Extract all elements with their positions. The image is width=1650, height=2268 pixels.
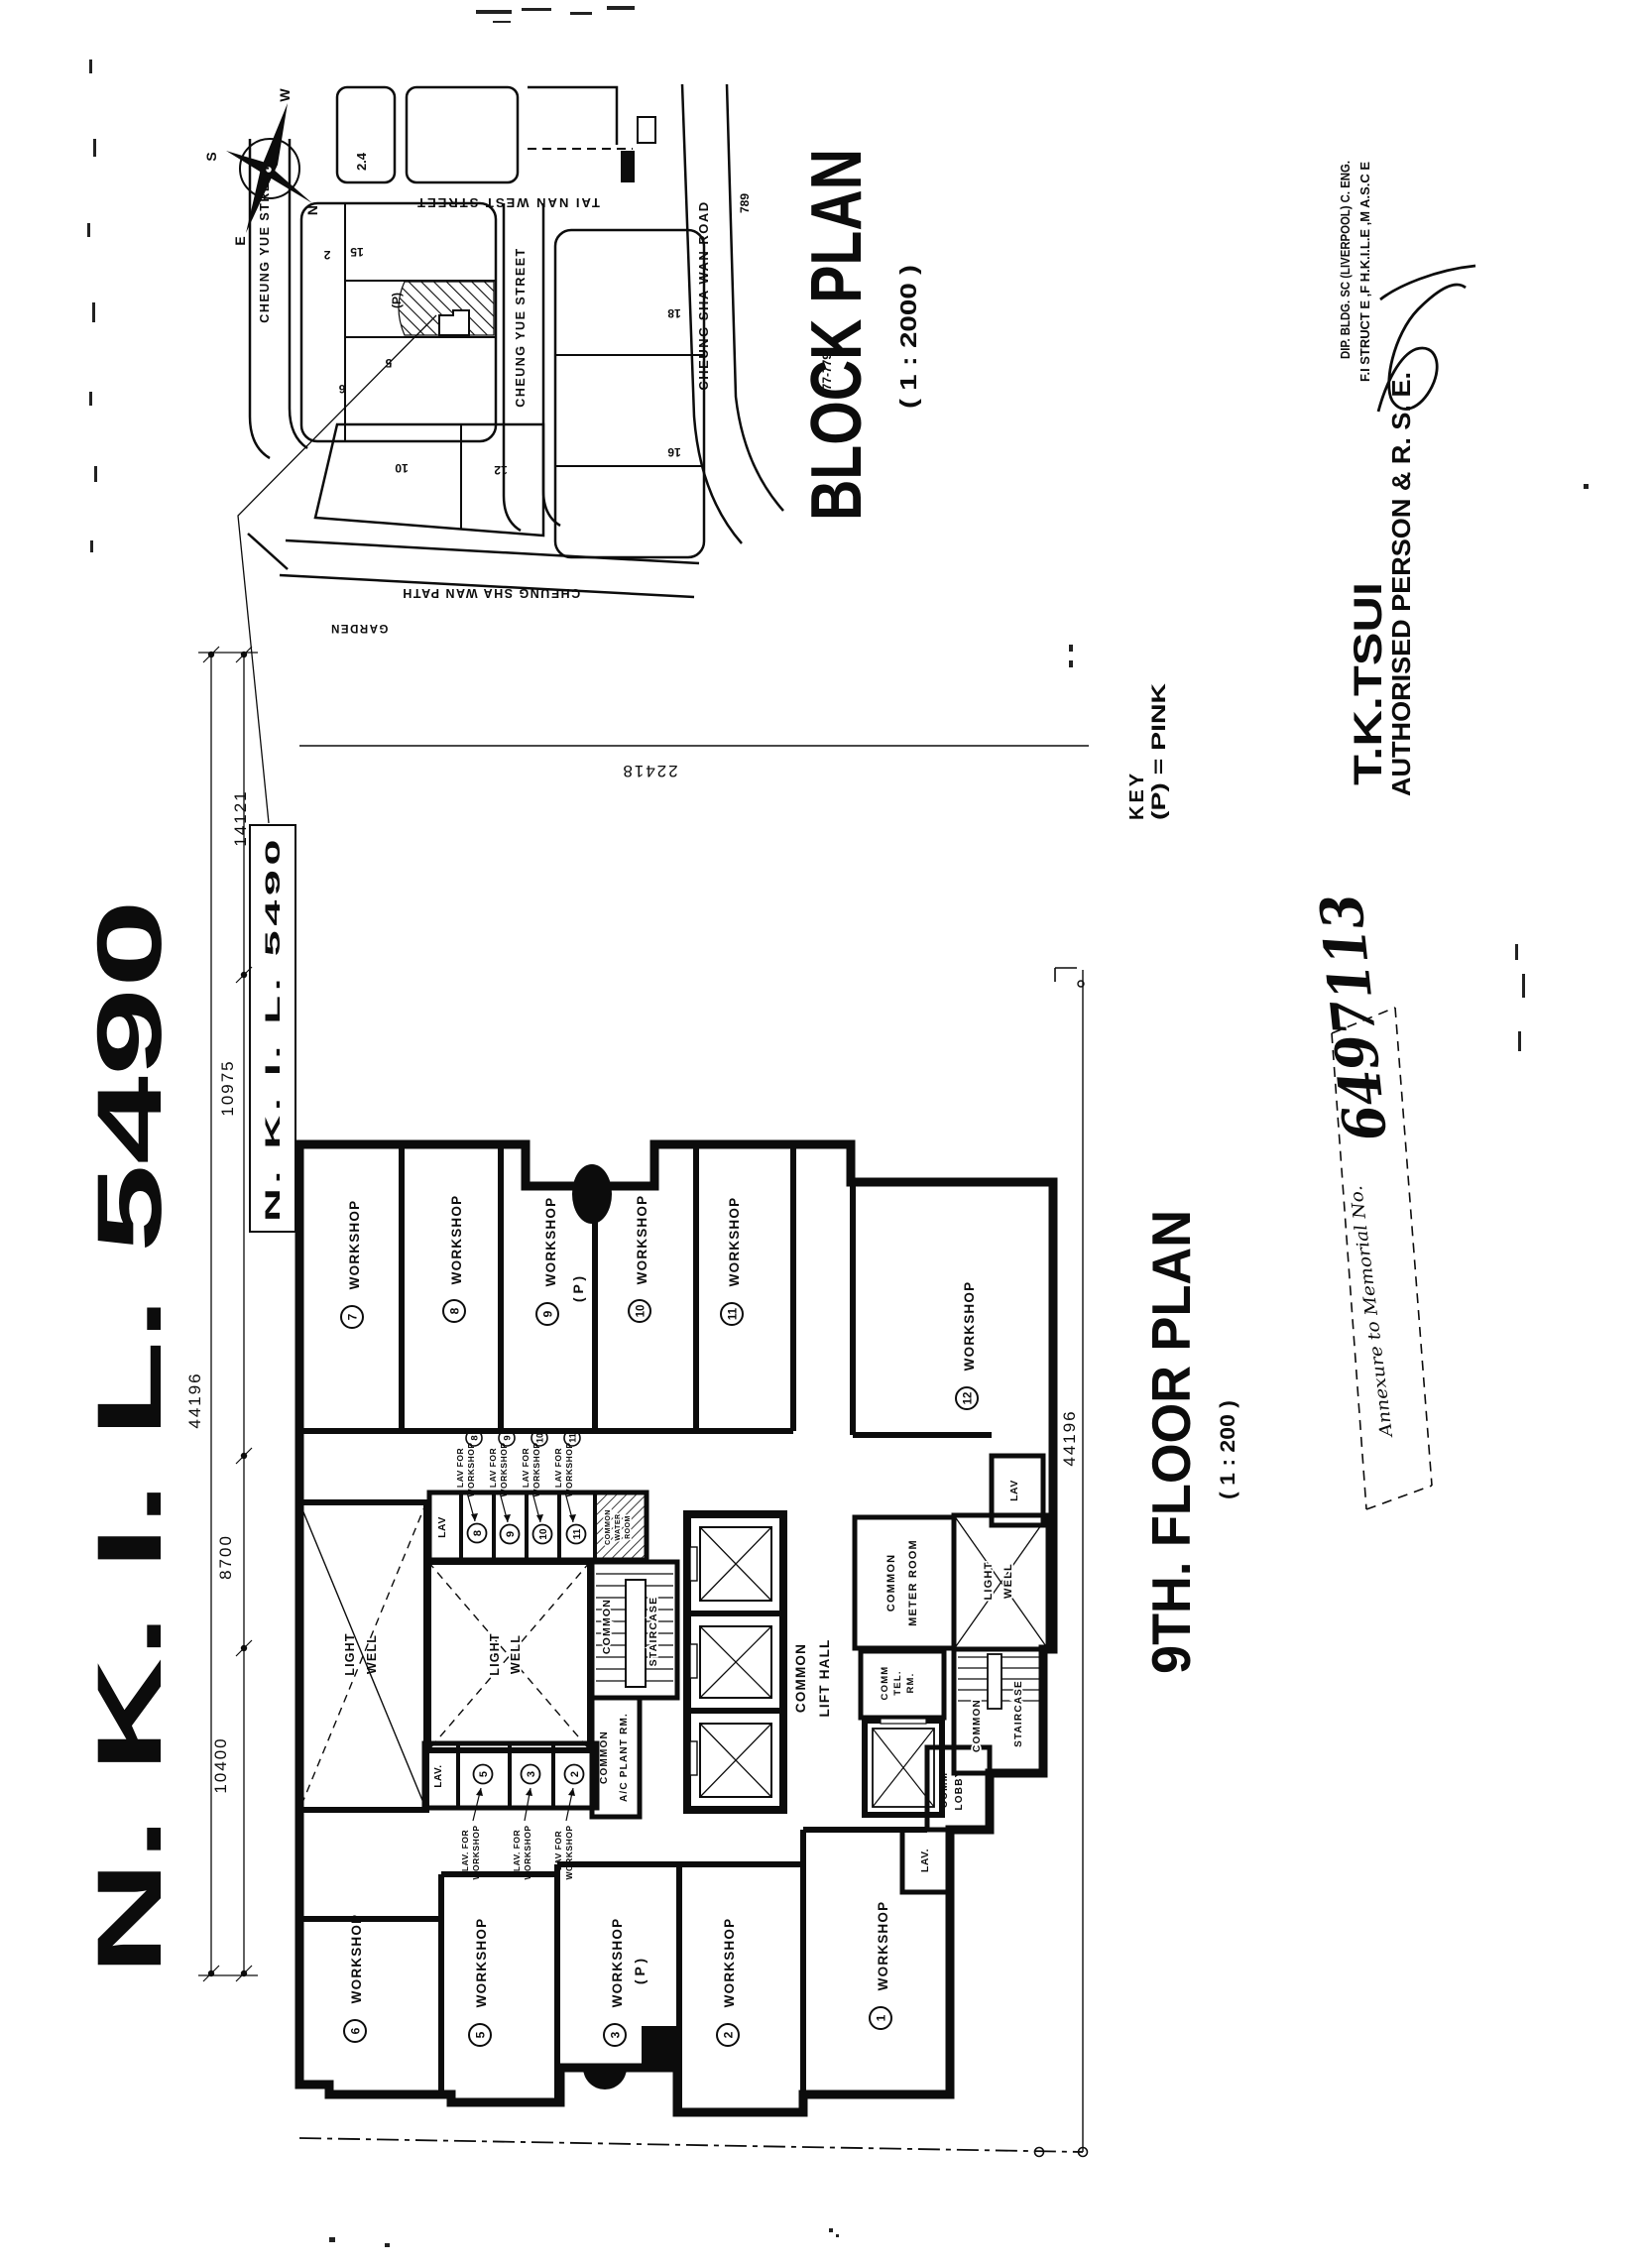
workshop-9-pink: ( P ) — [570, 1276, 586, 1302]
lift-hall-label-2: LIFT HALL — [817, 1638, 832, 1717]
lav-workshop-12: LAV — [1008, 1480, 1020, 1501]
lav-for-3: LAV. FOR — [512, 1830, 522, 1871]
light-well-1-label: LIGHT — [343, 1632, 357, 1676]
stamp-number: 6497113 — [1307, 891, 1400, 1144]
common-staircase-1: COMMON STAIRCASE — [592, 1562, 677, 1698]
workshop-3-pink: ( P ) — [632, 1959, 648, 1984]
stamp-label: Annexure to Memorial No. — [1347, 1184, 1397, 1440]
water-room-label-2: WATER — [615, 1513, 622, 1540]
right-core: COMMON METER ROOM COMM TEL. RM. COMMON S… — [855, 1480, 1043, 1872]
ac-plant-label-2: A/C PLANT RM. — [619, 1713, 630, 1802]
lav-8-number: 8 — [472, 1530, 484, 1536]
lobby-label-1: COMM — [939, 1772, 950, 1808]
lav-2-number: 2 — [569, 1771, 581, 1777]
tel-room-label-3: RM. — [905, 1672, 916, 1693]
dim-seg-8700: 8700 — [216, 1534, 235, 1580]
staircase-2-label-2: STAIRCASE — [1013, 1680, 1024, 1747]
workshop-5-number: 5 — [474, 2031, 488, 2038]
workshop-2-number: 2 — [722, 2031, 736, 2038]
dim-left-total: 44196 — [185, 1372, 204, 1428]
lot-6: 6 — [338, 382, 345, 396]
signatory-block: T.K.TSUI DIP. BLDG. SC (LIVERPOOL) C. EN… — [1339, 161, 1475, 796]
lav-for-9-num: 9 — [503, 1435, 514, 1440]
signatory-name: T.K.TSUI — [1347, 582, 1390, 785]
lift-door-2 — [690, 1644, 697, 1678]
dim-seg-10400: 10400 — [211, 1736, 230, 1793]
workshop-12-number: 12 — [963, 1392, 975, 1405]
workshop-6-label: WORKSHOP — [349, 1914, 364, 2004]
lot-title: N. K. I. L. 5490 — [79, 899, 180, 1975]
light-well-3-label: LIGHT — [983, 1562, 995, 1601]
workshop-10-number: 10 — [636, 1305, 648, 1318]
staircase-1-label-1: COMMON — [601, 1599, 613, 1654]
drawing-sheet: W S N E 2.4 TAI NAN WEST STREET CHEUNG Y… — [0, 0, 1650, 2268]
street-cheung-sha-wan-road: CHEUNG SHA WAN ROAD — [696, 200, 711, 390]
workshop-2-label: WORKSHOP — [722, 1918, 737, 2008]
lav-11-number: 11 — [572, 1528, 583, 1539]
workshop-6-number: 6 — [349, 2027, 363, 2034]
lav-workshop-1: LAV. — [919, 1849, 931, 1872]
workshop-10-label: WORKSHOP — [635, 1195, 649, 1285]
dim-seg-10975: 10975 — [218, 1059, 237, 1116]
ac-plant-label-1: COMMON — [599, 1731, 610, 1784]
upper-lav-labels: LAV FOR WORKSHOP 8 LAV FOR WORKSHOP 9 LA… — [455, 1430, 580, 1522]
lav-for-8: LAV FOR — [455, 1448, 465, 1488]
dim-top: 22418 — [621, 762, 677, 780]
lift-door-3 — [690, 1741, 697, 1775]
lav-workshop-7: LAV — [436, 1516, 448, 1538]
lot-2-4: 2.4 — [354, 152, 369, 171]
lift-bank — [687, 1514, 783, 1810]
lot-18: 18 — [667, 306, 681, 320]
lift-door-4 — [881, 1719, 926, 1724]
block-plan-scale: ( 1 : 2000 ) — [895, 265, 921, 409]
workshop-9-number: 9 — [541, 1310, 555, 1317]
light-well-2-label: LIGHT — [488, 1632, 502, 1676]
compass-w: W — [277, 88, 293, 102]
signatory-role: AUTHORISED PERSON & R. S. E. — [1386, 372, 1416, 796]
duct-block — [642, 2026, 677, 2068]
compass-s: S — [203, 152, 219, 161]
garden-label: GARDEN — [330, 622, 389, 634]
street-cheung-yue-east: CHEUNG YUE STREET — [514, 247, 528, 407]
workshop-1-number: 1 — [875, 2014, 888, 2021]
workshop-11-number: 11 — [728, 1307, 740, 1320]
block-building-solid — [621, 151, 635, 182]
lav-for-10-num: 10 — [535, 1433, 545, 1443]
light-well-3-label2: WELL — [1002, 1563, 1014, 1599]
block-plan-title: BLOCK PLAN — [797, 149, 877, 521]
floor-plan-title: 9TH. FLOOR PLAN — [1140, 1210, 1202, 1674]
upper-band-walls — [299, 1144, 1043, 1525]
lav-9-number: 9 — [505, 1531, 517, 1537]
lav-for-10: LAV FOR — [521, 1448, 530, 1488]
lav-5-number: 5 — [478, 1771, 490, 1777]
lav-for-2b: WORKSHOP — [564, 1826, 574, 1880]
lot-2: 2 — [323, 248, 330, 262]
dim-right-total: 44196 — [1060, 1409, 1079, 1466]
lower-lav-labels: LAV. FOR WORKSHOP LAV. FOR WORKSHOP LAV … — [460, 1788, 575, 1880]
lav-for-8b: WORKSHOP — [466, 1443, 476, 1497]
lav-for-5: LAV. FOR — [460, 1830, 470, 1871]
key-value: (P) = PINK — [1149, 683, 1170, 820]
lav-3-number: 3 — [526, 1771, 537, 1777]
duct-bump-lower — [583, 2068, 627, 2089]
workshop-11-label: WORKSHOP — [727, 1197, 742, 1287]
workshop-3-label: WORKSHOP — [610, 1918, 625, 2008]
lav-for-9: LAV FOR — [488, 1448, 498, 1488]
lot-15: 15 — [350, 245, 364, 259]
workshop-1-label: WORKSHOP — [876, 1901, 890, 1991]
lav-for-11-num: 11 — [568, 1433, 578, 1443]
street-cheung-yue-west: CHEUNG YUE STREET — [258, 163, 272, 322]
meter-room-label-2: METER ROOM — [907, 1539, 919, 1626]
tel-room-label-2: TEL. — [892, 1670, 903, 1695]
workshop-8-number: 8 — [448, 1307, 462, 1314]
compass-e: E — [232, 236, 248, 245]
lift-hall-label-1: COMMON — [793, 1643, 808, 1713]
dim-seg-14121: 14121 — [231, 789, 250, 846]
lav-for-10b: WORKSHOP — [531, 1443, 541, 1497]
workshop-8-label: WORKSHOP — [449, 1195, 464, 1285]
lav-for-3b: WORKSHOP — [523, 1826, 532, 1880]
lav-for-11: LAV FOR — [553, 1448, 563, 1488]
lav-10-number: 10 — [538, 1528, 549, 1540]
plan-drawing: W S N E 2.4 TAI NAN WEST STREET CHEUNG Y… — [0, 0, 1650, 2268]
lav-for-11b: WORKSHOP — [564, 1443, 574, 1497]
water-room-label-3: ROOM — [625, 1515, 632, 1539]
lot-10: 10 — [395, 461, 409, 475]
lot-789: 789 — [738, 193, 752, 213]
floor-plan: 22418 44196 44196 14121 10975 8700 10400 — [185, 647, 1089, 2157]
lav-for-2: LAV FOR — [553, 1831, 563, 1870]
block-plan: W S N E 2.4 TAI NAN WEST STREET CHEUNG Y… — [203, 84, 834, 1232]
lav-workshop-6: LAV. — [433, 1764, 444, 1787]
key-label: KEY — [1126, 771, 1148, 820]
signatory-credential-1: DIP. BLDG. SC (LIVERPOOL) C. ENG. — [1339, 161, 1353, 359]
upper-lav-strip: LAV 8 9 10 11 COMMON WATER ROOM — [429, 1492, 647, 1560]
lift-door-1 — [690, 1547, 697, 1581]
lav-for-9b: WORKSHOP — [499, 1443, 509, 1497]
street-cheung-sha-wan-path: CHEUNG SHA WAN PATH — [402, 586, 580, 600]
workshop-7-label: WORKSHOP — [347, 1200, 362, 1290]
light-well-1: LIGHT WELL — [299, 1502, 426, 1810]
workshop-12-label: WORKSHOP — [962, 1281, 977, 1372]
light-well-3: LIGHT WELL — [954, 1515, 1048, 1649]
site-pink-mark: (P) — [390, 293, 404, 308]
light-well-1-label2: WELL — [365, 1634, 379, 1674]
meter-room-label-1: COMMON — [885, 1554, 897, 1612]
floor-plan-scale: ( 1 : 200 ) — [1217, 1400, 1239, 1499]
workshop-7-number: 7 — [346, 1313, 360, 1320]
memorial-stamp: Annexure to Memorial No. 6497113 — [1307, 891, 1432, 1509]
site-ref-label: N. K. I. L. 5490 — [262, 835, 285, 1222]
light-well-2-label2: WELL — [509, 1634, 523, 1674]
light-well-2: LIGHT WELL — [428, 1562, 590, 1750]
lot-12: 12 — [494, 463, 508, 477]
water-room-label-1: COMMON — [605, 1509, 612, 1545]
dim-left: 44196 14121 10975 8700 10400 — [185, 647, 258, 1981]
lav-for-8-num: 8 — [470, 1435, 481, 1440]
workshop-5-label: WORKSHOP — [474, 1918, 489, 2008]
tel-room-label-1: COMM — [880, 1666, 890, 1701]
signatory-credential-2: F.I STRUCT E ,F H.K.I.L.E ,M A.S.C E — [1358, 162, 1372, 382]
workshop-3-number: 3 — [609, 2031, 623, 2038]
lobby-label-2: LOBBY — [954, 1770, 965, 1811]
staircase-2-label-1: COMMON — [972, 1699, 983, 1752]
lav-for-5b: WORKSHOP — [471, 1826, 481, 1880]
lot-16: 16 — [667, 445, 681, 459]
workshop-9-label: WORKSHOP — [543, 1197, 558, 1287]
staircase-1-label-2: STAIRCASE — [648, 1597, 659, 1667]
